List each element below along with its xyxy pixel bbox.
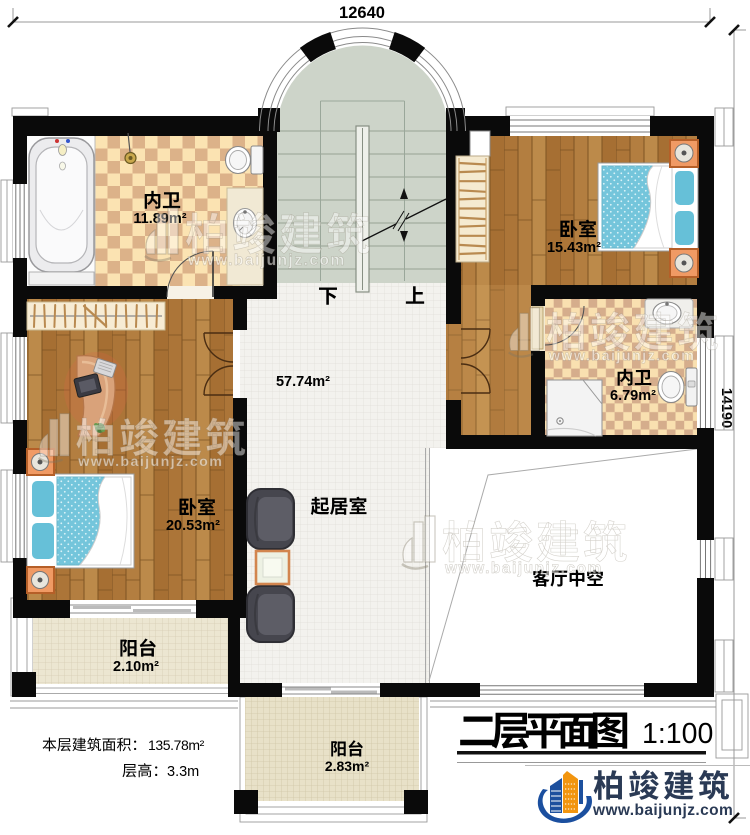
svg-text:www.baijunjz.com: www.baijunjz.com (444, 560, 603, 577)
svg-text:www.baijunjz.com: www.baijunjz.com (592, 802, 733, 819)
svg-text:1:100: 1:100 (642, 718, 713, 750)
svg-text:www.baijunjz.com: www.baijunjz.com (187, 252, 346, 269)
svg-text:20.53m²: 20.53m² (166, 518, 220, 534)
svg-text:135.78m²: 135.78m² (148, 737, 205, 753)
svg-text:57.74m²: 57.74m² (276, 374, 330, 390)
svg-text:2.10m²: 2.10m² (113, 659, 159, 675)
svg-text:3.3m: 3.3m (167, 764, 199, 780)
svg-text:6.79m²: 6.79m² (610, 388, 656, 404)
svg-text:14190: 14190 (718, 388, 734, 428)
svg-text:2.83m²: 2.83m² (325, 758, 370, 774)
svg-text:www.baijunjz.com: www.baijunjz.com (77, 454, 223, 470)
svg-text:12640: 12640 (339, 4, 385, 22)
svg-text:15.43m²: 15.43m² (547, 240, 601, 256)
svg-text:www.baijunjz.com: www.baijunjz.com (548, 349, 696, 365)
